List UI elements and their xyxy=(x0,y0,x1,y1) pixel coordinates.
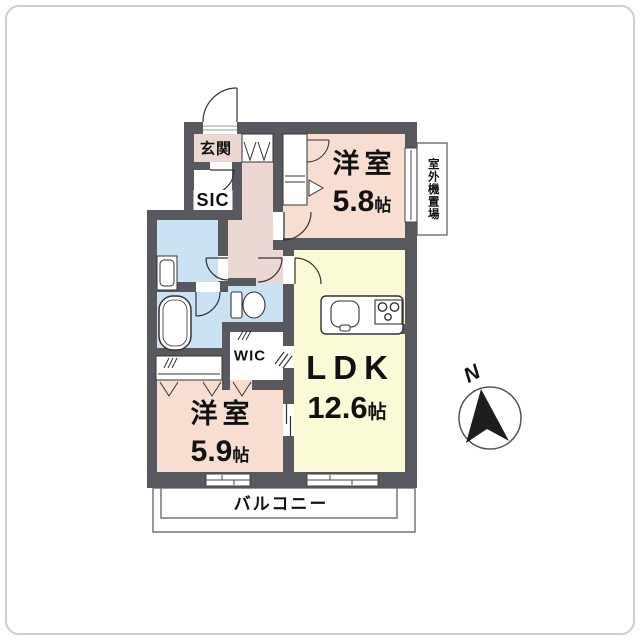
bedroom1-label: 洋室 5.8帖 xyxy=(328,151,397,217)
ldk-size-unit: 帖 xyxy=(368,402,387,423)
bedroom1-size: 5.8帖 xyxy=(333,187,392,217)
bedroom2-size-unit: 帖 xyxy=(232,446,249,465)
bedroom1-size-value: 5.8 xyxy=(333,185,375,218)
ldk-label: LDK 12.6帖 xyxy=(299,351,395,423)
ldk-name: LDK xyxy=(299,351,395,384)
floorplan-canvas: 玄関 SIC WIC 洋室 5.8帖 LDK 12.6帖 洋室 5.9帖 バルコ… xyxy=(0,0,640,640)
stove-icon xyxy=(375,300,402,324)
entrance-label: 玄関 xyxy=(200,142,232,157)
entrance-door xyxy=(203,88,237,134)
ldk-size: 12.6帖 xyxy=(307,392,386,423)
bedroom2-label: 洋室 5.9帖 xyxy=(186,401,255,467)
balcony-label: バルコニー xyxy=(234,496,329,513)
bedroom2-closet xyxy=(156,356,222,380)
sink-icon xyxy=(331,301,359,331)
room-hallway-floor-upper xyxy=(242,162,273,215)
washbasin-icon xyxy=(157,256,177,290)
north-arrow-icon xyxy=(459,387,521,449)
bathtub-icon xyxy=(159,296,191,350)
bedroom1-size-unit: 帖 xyxy=(374,196,391,215)
outdoor-unit-label: 室外機置場 xyxy=(426,158,438,221)
bedroom2-sliding-door xyxy=(283,404,294,436)
bedroom2-name: 洋室 xyxy=(186,401,255,428)
ldk-size-value: 12.6 xyxy=(307,390,367,425)
bedroom2-size: 5.9帖 xyxy=(191,437,250,467)
toilet-icon xyxy=(231,292,265,318)
bedroom2-size-value: 5.9 xyxy=(191,435,233,468)
entrance-closet xyxy=(242,134,273,162)
bedroom1-window xyxy=(405,148,417,222)
room-hallway-floor-mid xyxy=(228,215,273,250)
wic-label: WIC xyxy=(234,349,266,364)
sic-label: SIC xyxy=(193,190,232,210)
floorplan-drawing xyxy=(0,0,640,640)
bedroom2-balcony-window xyxy=(206,474,250,486)
bedroom1-name: 洋室 xyxy=(328,151,397,178)
kitchen-counter-icon xyxy=(321,296,403,334)
ldk-balcony-window xyxy=(307,474,378,486)
